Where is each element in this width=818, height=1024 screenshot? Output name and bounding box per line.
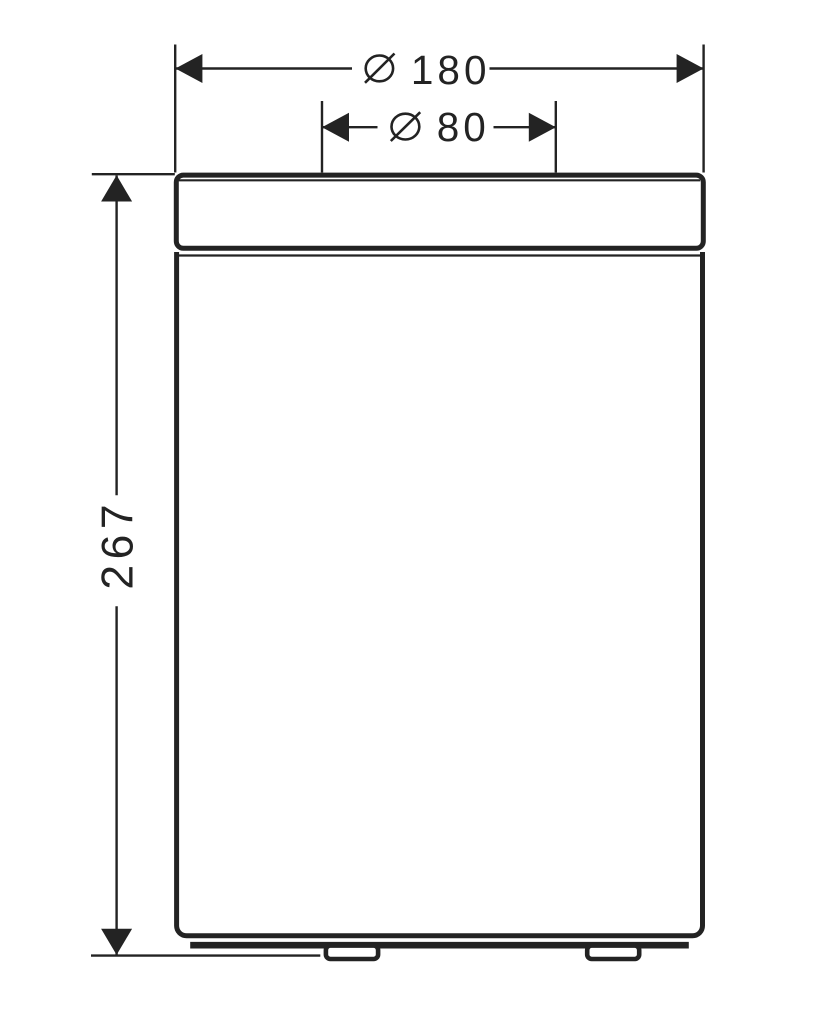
svg-text:180: 180 <box>411 47 491 93</box>
svg-text:267: 267 <box>94 499 143 590</box>
svg-text:80: 80 <box>437 104 490 150</box>
